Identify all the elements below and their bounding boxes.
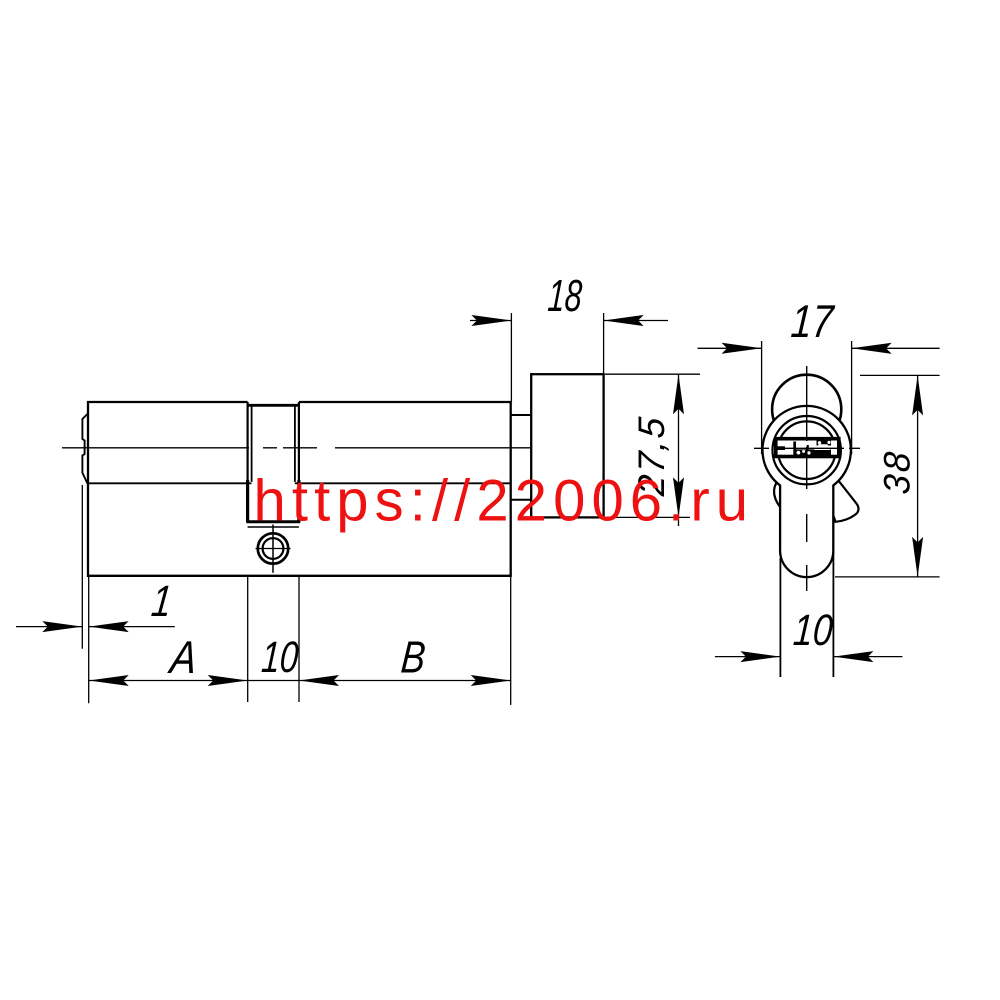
svg-text:18: 18 <box>546 271 583 321</box>
svg-text:17: 17 <box>789 296 836 347</box>
svg-text:10: 10 <box>260 634 300 683</box>
svg-text:B: B <box>399 632 427 683</box>
svg-text:10: 10 <box>792 606 835 655</box>
svg-text:https://22006.ru: https://22006.ru <box>254 469 755 534</box>
svg-text:38: 38 <box>876 448 918 496</box>
